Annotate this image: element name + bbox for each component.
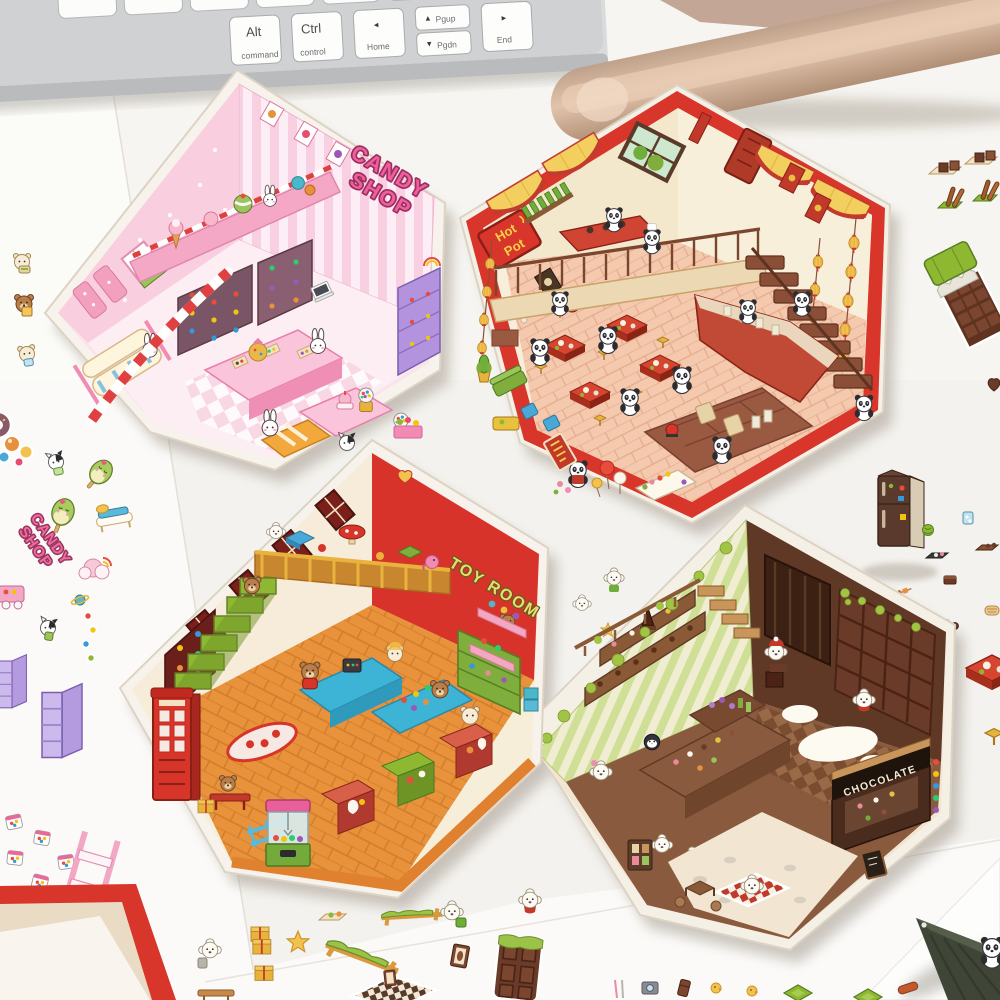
key-alt-label: Alt (246, 24, 262, 40)
gift-stack-sticker (255, 966, 273, 980)
cat-character (339, 433, 356, 451)
key-pgup-label: Pgup (435, 13, 456, 24)
frame-sticker (450, 944, 470, 968)
purple-shelf-sticker (42, 684, 82, 758)
scene-canvas: Altcommand Ctrlcontrol ◂Home ▴Pgup▾Pgdn … (0, 0, 1000, 1000)
keyboard-key-home: ◂Home (353, 8, 406, 59)
claw-machine (266, 800, 310, 866)
brick-patch (492, 330, 518, 346)
phone-booth (151, 688, 200, 800)
keyboard-key-ctrl: Ctrlcontrol (291, 11, 344, 62)
key-end-label: End (497, 34, 513, 45)
key-ctrl-sublabel: control (300, 46, 326, 57)
bear-red-dress (300, 662, 320, 689)
keyboard-key-alt: Altcommand (229, 15, 282, 66)
cat-with-hood (386, 642, 403, 662)
key-ctrl-label: Ctrl (301, 21, 322, 37)
purple-shelf-sticker (0, 655, 26, 708)
frame-sticker (384, 970, 397, 986)
fridge-sticker (878, 470, 924, 548)
key-pgdn-label: Pgdn (437, 39, 458, 50)
gumball-machine (359, 388, 373, 411)
hamster-character (461, 707, 480, 725)
key-home-label: Home (367, 41, 390, 52)
key-alt-sublabel: command (241, 49, 279, 61)
penguin-character (644, 734, 659, 749)
photo-scene: Altcommand Ctrlcontrol ◂Home ▴Pgup▾Pgdn … (0, 0, 1000, 1000)
gift-stack-sticker (251, 927, 271, 954)
panda-sticker (981, 937, 1000, 968)
keyboard-key-end: ▸End (481, 1, 534, 52)
chocolate-door-sticker (493, 933, 544, 1000)
